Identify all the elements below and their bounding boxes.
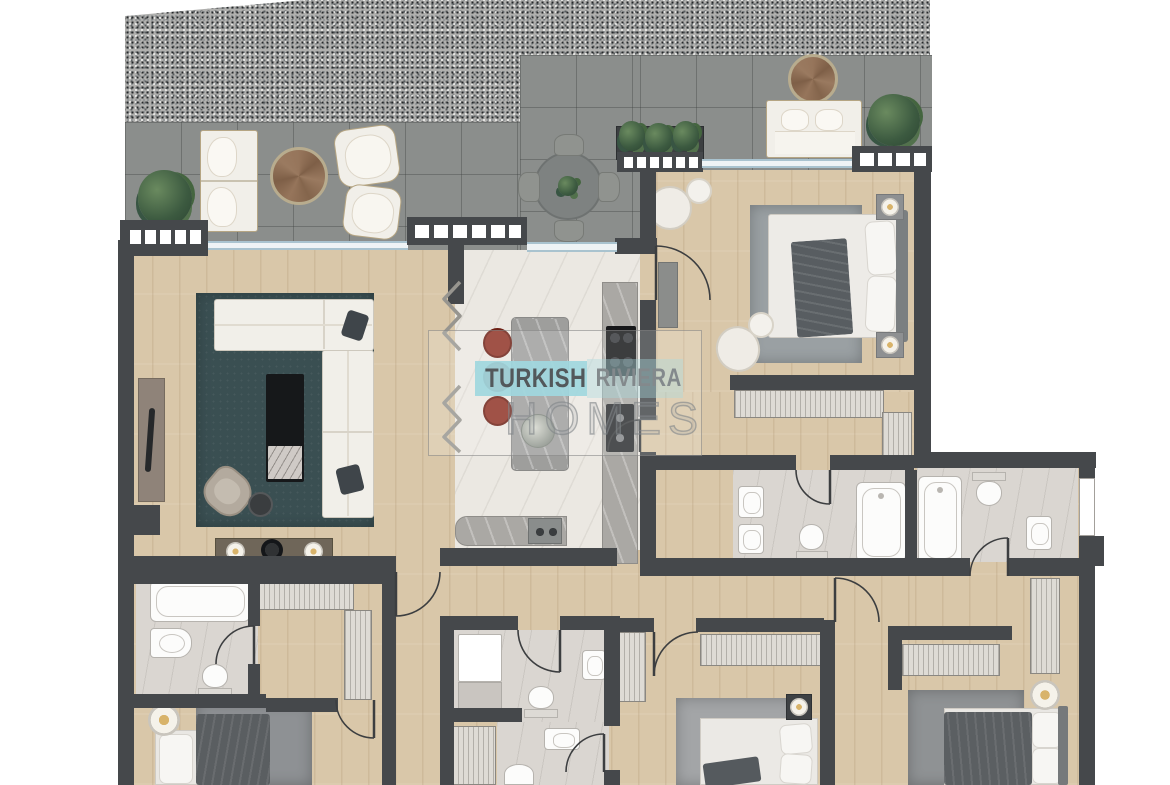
terrace-sofa-right: [766, 100, 862, 158]
sofa-pillow: [781, 109, 809, 131]
terrace-round-table-right: [788, 54, 838, 104]
toilet-tank: [972, 472, 1006, 481]
nightstand-lamp: [881, 336, 899, 354]
sink-basin: [743, 492, 761, 514]
wall-bedroom-mid-top-b: [696, 618, 824, 632]
wall-bedroom1-right: [914, 152, 931, 468]
sink-basin: [553, 733, 575, 748]
sofa-seam: [323, 431, 372, 433]
sink-basin: [1031, 523, 1049, 545]
dining-table-plant: [558, 176, 578, 196]
sofa-pillow: [815, 109, 843, 131]
railing-louver: [120, 220, 208, 256]
bathtub: [150, 580, 250, 622]
toilet: [198, 664, 232, 698]
wall-bathm1-left: [440, 616, 454, 785]
double-sink: [738, 486, 764, 518]
bathtub: [856, 482, 906, 562]
floor-plan: TURKISH RIVIERA HOMES: [0, 0, 1170, 785]
bathtub: [918, 476, 962, 564]
terrace-lounge-chair: [332, 123, 401, 189]
watermark-word-turkish: TURKISH: [485, 361, 577, 395]
railing-louver: [617, 152, 703, 172]
bathtub-drain: [937, 487, 943, 493]
vanity-sink: [544, 728, 580, 750]
wall-closet-bottom: [266, 698, 338, 712]
sink-basin: [159, 634, 185, 653]
toilet-bowl: [976, 481, 1002, 506]
bedroom-right-lamp: [1030, 680, 1060, 710]
terrace-lounge-chair: [341, 183, 403, 241]
wall-bathm1-top-a: [454, 616, 518, 630]
wall-bedroom-mid-right: [820, 620, 835, 785]
sofa-seat: [775, 131, 855, 154]
wall-bathrow-bottom-b: [1008, 558, 1079, 576]
bathtub-drain: [878, 493, 884, 499]
bedroom1-cabinet: [658, 262, 678, 328]
wardrobe-strip: [452, 726, 496, 785]
toilet: [972, 472, 1006, 506]
wall-left-jog: [134, 505, 160, 535]
wall-bathm-divider: [440, 708, 522, 722]
wall-bedroom-right-left: [888, 640, 902, 690]
bathtub-basin: [924, 482, 957, 559]
wall-kitchen-top-stub: [448, 240, 464, 304]
toilet-bowl: [799, 524, 824, 550]
dining-chair: [554, 134, 584, 156]
wall-bathbl-divider-b: [248, 664, 260, 698]
planter-greenery: [619, 121, 645, 151]
wall-bathbl-bottom: [134, 694, 266, 708]
vanity-sink: [150, 628, 192, 658]
vanity-sink: [1026, 516, 1052, 550]
coffee-table: [266, 374, 304, 482]
wall-bedroom-bl-right: [382, 712, 396, 785]
wardrobe-strip: [618, 632, 646, 702]
bedroom1-chair2-ottoman: [748, 312, 774, 338]
wall-bathrow-bottom-a: [640, 558, 970, 576]
chair-cushion: [350, 191, 397, 236]
wall-bathrow-top-b: [830, 455, 914, 470]
wall-kitchen-right-low: [640, 452, 656, 572]
bedroom-right-wardrobe-h: [902, 644, 1000, 676]
terrace-plant: [138, 170, 192, 226]
railing-louver: [407, 217, 527, 245]
wall-bedroom-right-top: [888, 626, 1012, 640]
nightstand-lamp: [790, 698, 808, 716]
wall-bedroom-mid-top-a: [620, 618, 654, 632]
nightstand-lamp: [881, 198, 899, 216]
bedroom-bl-pillow: [159, 734, 193, 784]
bed-headboard: [1058, 706, 1068, 785]
sliding-glass-door: [702, 159, 854, 168]
bedroom-bl-lamp: [148, 704, 180, 736]
dining-chair: [554, 220, 584, 242]
bedroom1-wardrobe: [734, 390, 884, 418]
railing-louver: [852, 146, 932, 172]
bedroom-mid-wardrobe: [700, 634, 822, 666]
wall-exterior-left: [118, 240, 134, 785]
toilet-tank: [524, 709, 558, 718]
sliding-glass-door: [527, 242, 617, 252]
closet-wardrobe-right: [344, 610, 372, 700]
side-table: [248, 492, 273, 517]
vanity-sink: [582, 650, 606, 680]
toilet-bowl: [504, 764, 534, 785]
chair-cushion: [342, 132, 394, 182]
wall-bathbl-top: [134, 570, 384, 584]
terrace-plant-right: [868, 94, 920, 146]
dining-chair: [518, 172, 540, 202]
toilet-bowl: [202, 664, 228, 688]
kitchen-sink-bottom: [528, 518, 562, 544]
shower: [458, 634, 502, 682]
wall-kitchen-bottom: [440, 548, 617, 566]
bed-headboard: [896, 210, 908, 342]
planter-greenery: [645, 123, 673, 153]
sink-basin: [743, 530, 761, 550]
wall-bathm2-right: [604, 770, 620, 785]
coffee-table-marble-tray: [268, 446, 302, 479]
toilet: [796, 524, 828, 560]
armchair-cushion: [210, 474, 245, 509]
wall-bathbl-divider-a: [248, 584, 260, 626]
watermark-word-homes: HOMES: [505, 393, 705, 445]
bedroom-bl-blanket: [196, 714, 270, 785]
bedroom-mid-pillow: [779, 753, 813, 785]
wall-step-top: [914, 452, 1096, 468]
wall-bedroom1-bottom: [730, 375, 916, 390]
bed-pillow: [864, 220, 898, 276]
terrace-round-table: [270, 147, 328, 205]
toilet-bowl: [528, 686, 554, 709]
toilet: [524, 686, 558, 718]
terrace-sofa: [200, 130, 258, 232]
bed-pillow: [865, 275, 898, 332]
terrace-sofa-divider: [201, 180, 257, 182]
wall-bathm1-right: [604, 616, 620, 726]
window: [1079, 478, 1095, 536]
bedroom-mid-pillow: [779, 723, 813, 756]
sliding-glass-door: [208, 241, 408, 250]
terrace-sofa-cushion: [207, 187, 237, 227]
planter-greenery: [673, 121, 699, 151]
bedroom1-armchair-ottoman: [686, 178, 712, 204]
wall-bathrow-top-a: [656, 455, 796, 470]
bedroom-right-blanket: [944, 712, 1032, 785]
wall-right-bump: [1095, 536, 1104, 566]
watermark: TURKISH RIVIERA HOMES: [428, 330, 702, 456]
wall-closet-right: [382, 570, 396, 712]
terrace-sofa-cushion: [207, 137, 237, 177]
wall-bath-ab-divider: [905, 470, 917, 560]
sink-basin: [587, 656, 603, 676]
bed-throw-blanket: [791, 238, 854, 338]
bathtub-basin: [156, 586, 245, 617]
watermark-word-riviera: RIVIERA: [596, 361, 675, 395]
dining-chair: [598, 172, 620, 202]
bedroom-right-wardrobe-v: [1030, 578, 1060, 674]
double-sink: [738, 524, 764, 554]
